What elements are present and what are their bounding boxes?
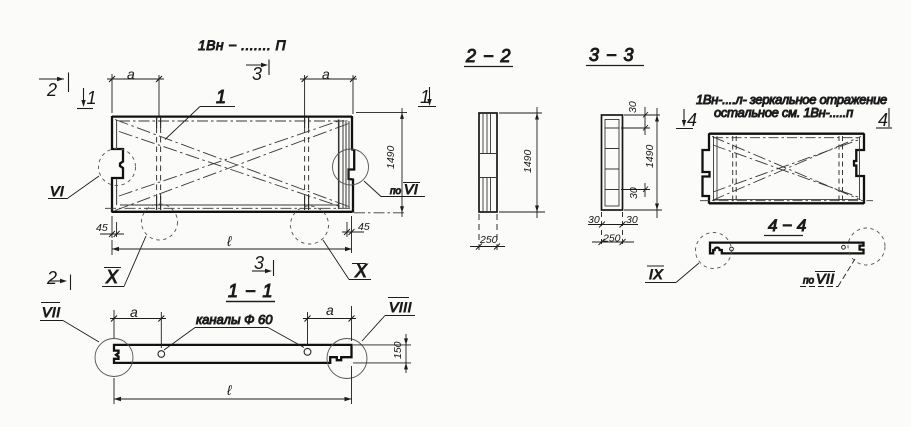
svg-text:2: 2 <box>46 268 57 288</box>
svg-text:по: по <box>803 276 815 287</box>
svg-text:2 − 2: 2 − 2 <box>465 46 512 66</box>
svg-text:a: a <box>326 302 334 318</box>
svg-text:45: 45 <box>96 222 108 234</box>
svg-text:VIII: VIII <box>389 299 412 315</box>
svg-text:30: 30 <box>626 214 638 226</box>
svg-text:4: 4 <box>687 110 697 130</box>
svg-text:1 − 1: 1 − 1 <box>228 281 274 301</box>
svg-text:каналы Ф 60: каналы Ф 60 <box>196 312 273 327</box>
svg-text:VII: VII <box>816 271 835 287</box>
svg-text:VI: VI <box>50 183 64 199</box>
svg-text:X: X <box>105 267 119 287</box>
svg-text:250: 250 <box>602 233 621 245</box>
svg-text:3: 3 <box>252 64 262 84</box>
svg-text:a: a <box>127 66 135 82</box>
svg-text:1Вн − ....... П: 1Вн − ....... П <box>198 37 287 53</box>
svg-text:3 − 3: 3 − 3 <box>589 45 635 65</box>
svg-text:1490: 1490 <box>385 145 397 169</box>
svg-text:a: a <box>322 66 330 82</box>
svg-text:1490: 1490 <box>522 149 534 173</box>
svg-text:4: 4 <box>878 110 888 130</box>
svg-text:3: 3 <box>254 253 264 273</box>
svg-text:45: 45 <box>358 221 370 233</box>
svg-text:2: 2 <box>46 80 57 100</box>
svg-text:1: 1 <box>87 88 97 108</box>
svg-text:X: X <box>354 261 368 281</box>
svg-text:1: 1 <box>420 87 430 107</box>
svg-text:a: a <box>130 304 138 320</box>
svg-text:IX: IX <box>649 266 663 282</box>
svg-text:30: 30 <box>588 214 600 226</box>
svg-text:ℓ: ℓ <box>226 382 232 398</box>
svg-text:4 − 4: 4 − 4 <box>768 216 806 235</box>
svg-text:VII: VII <box>42 304 61 320</box>
svg-text:по: по <box>390 186 402 197</box>
svg-text:1490: 1490 <box>644 144 656 168</box>
svg-text:30: 30 <box>628 187 640 199</box>
svg-text:ℓ: ℓ <box>226 233 232 249</box>
svg-text:остальное см. 1Вн-.....п: остальное см. 1Вн-.....п <box>714 105 853 120</box>
svg-text:150: 150 <box>392 341 404 359</box>
svg-text:250: 250 <box>479 234 498 246</box>
svg-text:VI: VI <box>404 181 418 197</box>
svg-text:1: 1 <box>216 87 226 107</box>
svg-text:30: 30 <box>627 101 639 113</box>
